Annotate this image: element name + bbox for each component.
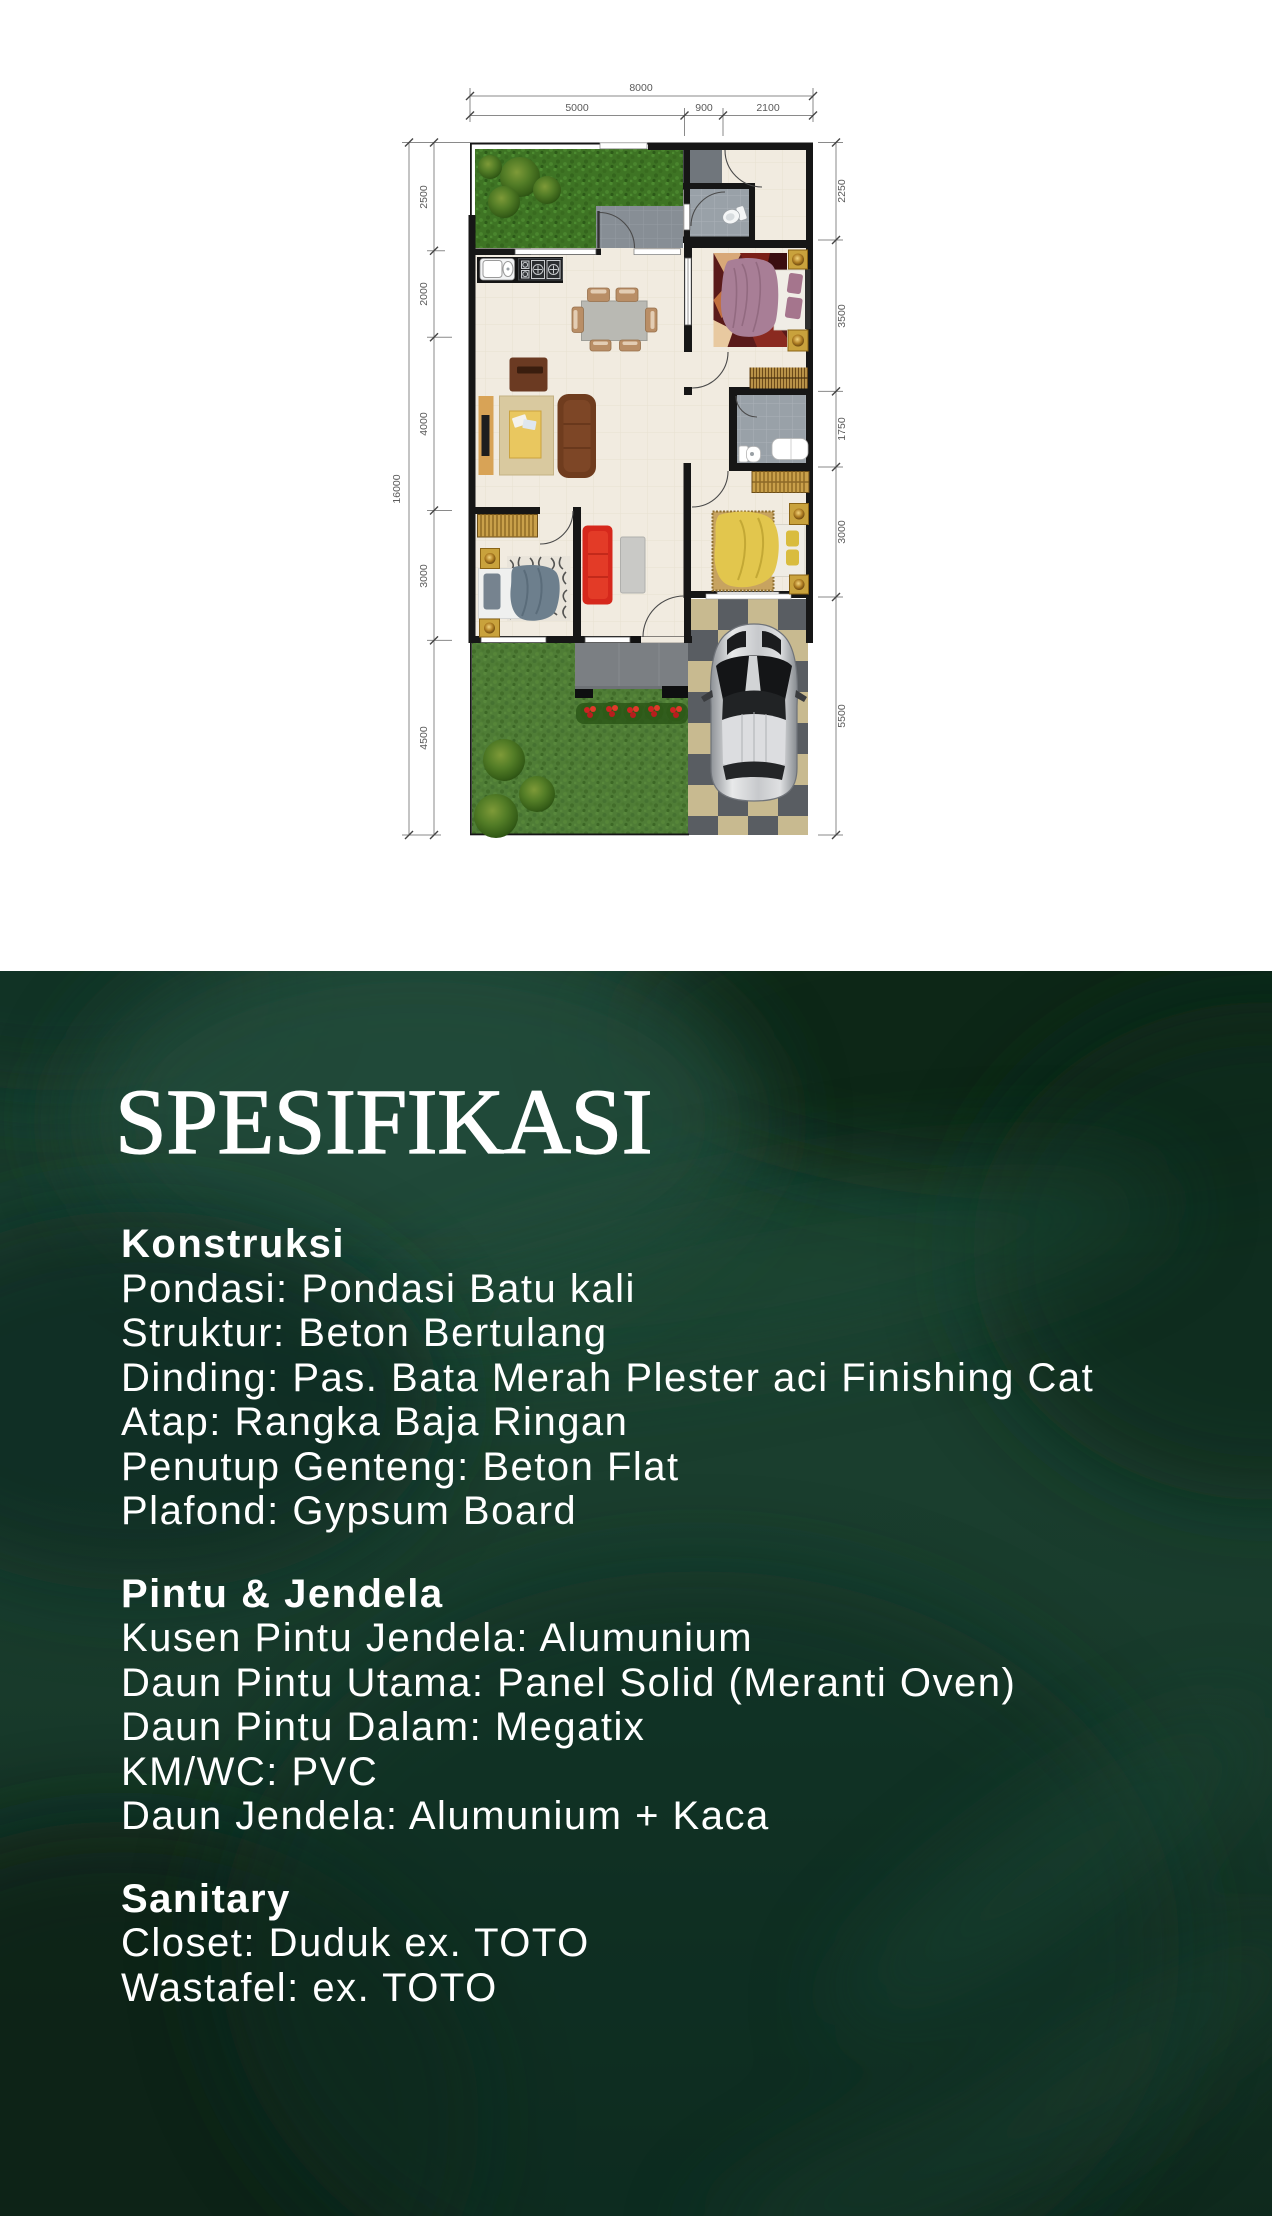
svg-text:1750: 1750 [836, 417, 848, 441]
svg-text:2100: 2100 [756, 102, 780, 114]
svg-text:5500: 5500 [836, 704, 848, 728]
svg-text:4500: 4500 [418, 726, 430, 750]
svg-text:8000: 8000 [629, 82, 653, 94]
svg-text:3000: 3000 [836, 520, 848, 544]
svg-text:2250: 2250 [836, 179, 848, 203]
svg-text:3500: 3500 [836, 304, 848, 328]
svg-text:5000: 5000 [565, 102, 589, 114]
svg-text:3000: 3000 [418, 564, 430, 588]
svg-text:16000: 16000 [391, 474, 403, 503]
svg-text:2500: 2500 [418, 185, 430, 209]
svg-text:900: 900 [695, 102, 713, 114]
svg-text:4000: 4000 [418, 412, 430, 436]
svg-text:2000: 2000 [418, 282, 430, 306]
